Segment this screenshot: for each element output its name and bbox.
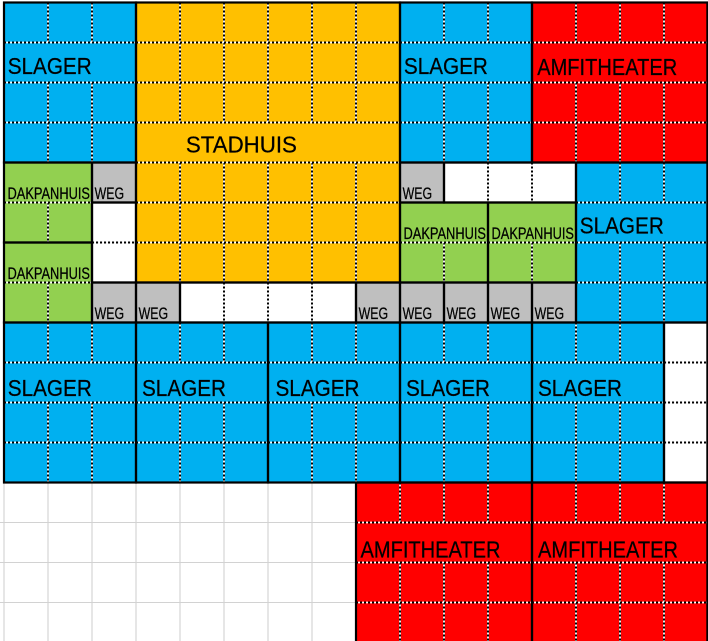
svg-text:SLAGER: SLAGER bbox=[406, 375, 490, 401]
svg-text:SLAGER: SLAGER bbox=[142, 375, 226, 401]
svg-text:DAKPANHUIS: DAKPANHUIS bbox=[404, 224, 487, 243]
svg-text:WEG: WEG bbox=[447, 304, 477, 323]
svg-text:AMFITHEATER: AMFITHEATER bbox=[361, 536, 501, 562]
svg-text:SLAGER: SLAGER bbox=[538, 375, 622, 401]
svg-text:STADHUIS: STADHUIS bbox=[186, 132, 297, 158]
svg-text:WEG: WEG bbox=[403, 304, 433, 323]
svg-text:DAKPANHUIS: DAKPANHUIS bbox=[8, 264, 91, 283]
svg-text:WEG: WEG bbox=[403, 184, 433, 203]
svg-text:SLAGER: SLAGER bbox=[580, 212, 664, 238]
svg-text:WEG: WEG bbox=[95, 304, 125, 323]
svg-text:WEG: WEG bbox=[535, 304, 565, 323]
svg-text:SLAGER: SLAGER bbox=[8, 53, 92, 79]
svg-text:AMFITHEATER: AMFITHEATER bbox=[538, 536, 678, 562]
svg-text:WEG: WEG bbox=[359, 304, 389, 323]
svg-text:SLAGER: SLAGER bbox=[276, 375, 360, 401]
svg-text:DAKPANHUIS: DAKPANHUIS bbox=[8, 184, 91, 203]
svg-text:SLAGER: SLAGER bbox=[404, 53, 488, 79]
svg-text:AMFITHEATER: AMFITHEATER bbox=[537, 54, 677, 80]
svg-text:DAKPANHUIS: DAKPANHUIS bbox=[492, 224, 575, 243]
svg-text:WEG: WEG bbox=[491, 304, 520, 323]
svg-text:SLAGER: SLAGER bbox=[8, 375, 92, 401]
svg-text:WEG: WEG bbox=[95, 184, 125, 203]
svg-text:WEG: WEG bbox=[139, 304, 169, 323]
